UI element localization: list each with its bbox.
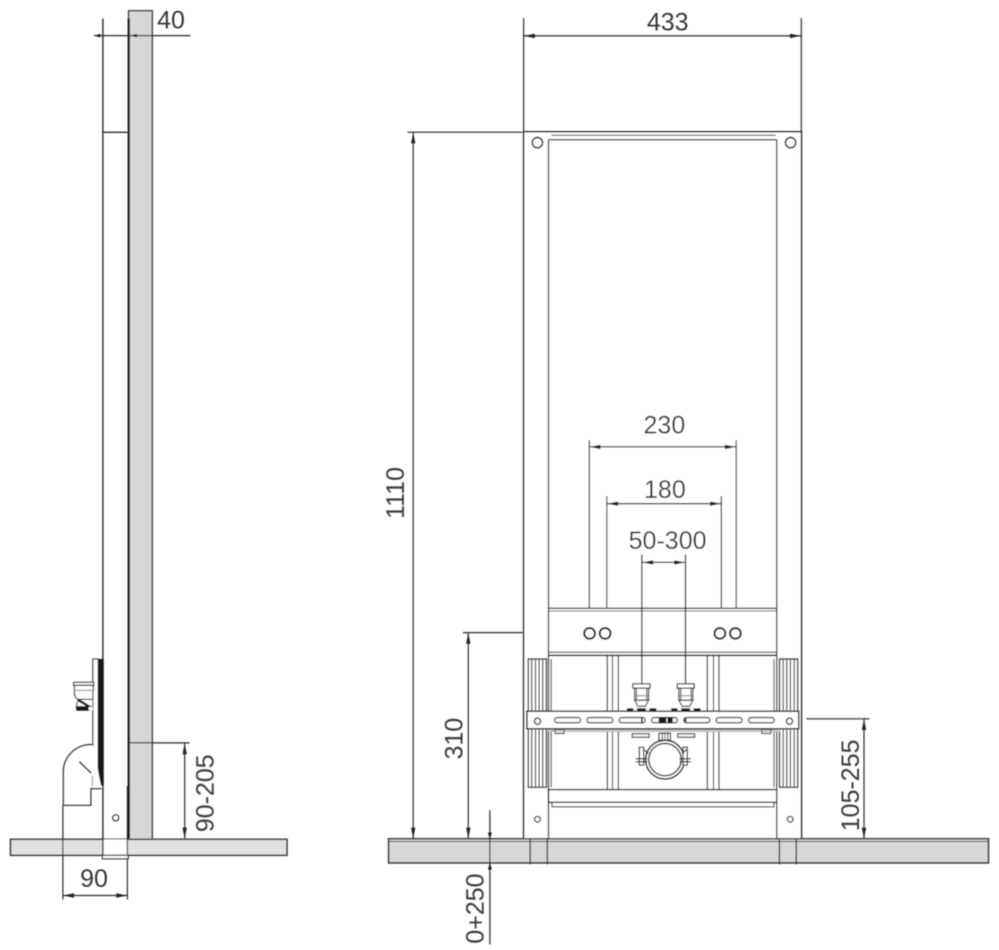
- svg-text:40: 40: [157, 7, 185, 35]
- svg-text:310: 310: [441, 718, 469, 760]
- svg-text:433: 433: [647, 9, 689, 37]
- svg-text:1110: 1110: [382, 467, 410, 519]
- svg-text:230: 230: [644, 412, 686, 440]
- svg-text:180: 180: [644, 476, 686, 504]
- svg-text:50-300: 50-300: [629, 527, 707, 555]
- svg-text:105-255: 105-255: [837, 740, 865, 832]
- svg-text:90: 90: [80, 865, 108, 893]
- svg-text:0+250: 0+250: [462, 873, 490, 943]
- svg-text:90-205: 90-205: [192, 754, 220, 832]
